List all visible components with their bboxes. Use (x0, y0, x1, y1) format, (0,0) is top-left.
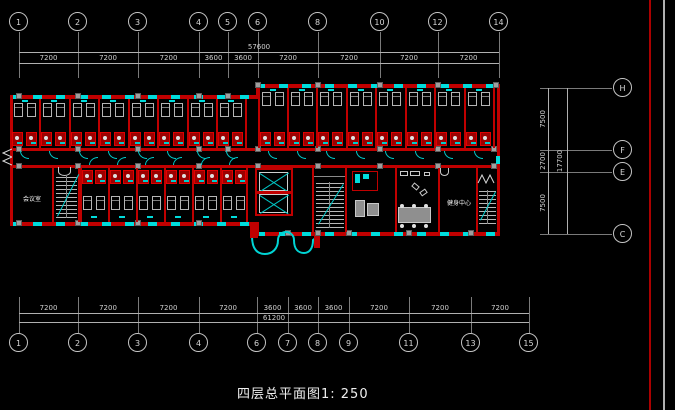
bathroom (159, 132, 170, 146)
room-label-center: 健身中心 (442, 198, 476, 207)
bath-fixture-cyan (355, 174, 360, 183)
bathroom (318, 132, 329, 146)
grid-bubble-bottom: 7 (278, 333, 297, 352)
bathroom (466, 132, 477, 146)
bed (468, 92, 477, 106)
window-tick (496, 156, 500, 164)
dim-segment-top: 3600 (228, 54, 258, 62)
bathroom-fixture (469, 136, 473, 140)
bed-pillow-line (133, 107, 140, 108)
bathroom-fixture (141, 174, 145, 178)
dim-total-bottom: 61200 (249, 314, 299, 322)
bathroom-fixture-cyan (105, 142, 110, 144)
bathroom-fixture-cyan (90, 142, 95, 144)
dim-line-top-total (19, 52, 499, 53)
bed (350, 92, 359, 106)
stair-wall (345, 168, 347, 232)
grid-bubble-bottom: 2 (68, 333, 87, 352)
bed (86, 103, 95, 117)
column-marker (468, 230, 474, 236)
grid-bubble-bottom: 3 (128, 333, 147, 352)
table-chair-dot (424, 224, 428, 228)
grid-bubble-right: F (613, 140, 632, 159)
bed-pillow-line (196, 200, 203, 201)
bathroom (303, 132, 314, 146)
bathroom (222, 170, 233, 184)
bathroom (207, 170, 218, 184)
bathroom (85, 132, 96, 146)
bed (392, 92, 401, 106)
cad-floorplan-canvas: 1234568101214576007200720072003600360072… (0, 0, 675, 410)
dim-segment-bottom: 7200 (364, 304, 394, 312)
bathroom-fixture (154, 174, 158, 178)
bed-pillow-line (103, 107, 110, 108)
bathroom-fixture (133, 136, 137, 140)
bathroom-fixture-cyan (455, 142, 460, 144)
bathroom-fixture (380, 136, 384, 140)
door-swing-arc (415, 151, 424, 159)
column-marker (315, 163, 321, 169)
bathroom-fixture-cyan (208, 142, 213, 144)
tv-desk-mark (119, 216, 125, 218)
expansion-joint-zigzag (2, 148, 12, 168)
bathroom (391, 132, 402, 146)
bathroom (166, 170, 177, 184)
bathroom-fixture (277, 136, 281, 140)
bed (379, 92, 388, 106)
dim-line-right-total (567, 88, 568, 234)
dim-segment-top: 7200 (154, 54, 184, 62)
bathroom (100, 132, 111, 146)
bathroom-fixture (44, 136, 48, 140)
grid-line-top (78, 32, 79, 78)
bed (233, 103, 242, 117)
bed-pillow-line (334, 96, 341, 97)
grid-line-right (540, 172, 612, 173)
bed (409, 92, 418, 106)
tv-desk-mark (358, 89, 364, 91)
bed-pillow-line (305, 96, 312, 97)
column-marker (75, 93, 81, 99)
bathroom (12, 132, 23, 146)
door-swing-arc (49, 151, 58, 159)
bathroom-fixture-cyan (237, 142, 242, 144)
bathroom-fixture-cyan (128, 180, 133, 182)
bathroom-fixture (321, 136, 325, 140)
grid-line-right (540, 150, 612, 151)
dim-segment-right: 7500 (539, 99, 547, 139)
bed (220, 103, 229, 117)
tv-desk-mark (328, 89, 334, 91)
bathroom-fixture (169, 174, 173, 178)
grid-bubble-bottom: 8 (308, 333, 327, 352)
bathroom-fixture-cyan (149, 142, 154, 144)
door-swing-arc (167, 151, 176, 159)
bathroom-fixture (394, 136, 398, 140)
bed (204, 103, 213, 117)
grid-line-bottom (318, 297, 319, 333)
tv-desk-mark (169, 100, 175, 102)
bed-pillow-line (153, 200, 160, 201)
door-swing-arc (385, 151, 394, 159)
bathroom-fixture-cyan (426, 142, 431, 144)
bathroom-fixture (147, 136, 151, 140)
bathroom-fixture (103, 136, 107, 140)
grid-bubble-top: 14 (489, 12, 508, 31)
bathroom-fixture-cyan (199, 180, 204, 182)
bed (422, 92, 431, 106)
bathroom-fixture (29, 136, 33, 140)
bathroom-fixture (206, 136, 210, 140)
bed-pillow-line (57, 107, 64, 108)
room-partition-wall (438, 168, 440, 232)
grid-bubble-bottom: 9 (339, 333, 358, 352)
grid-bubble-top: 5 (218, 12, 237, 31)
bathroom-fixture-cyan (135, 142, 140, 144)
grid-bubble-bottom: 13 (461, 333, 480, 352)
bathroom-fixture (176, 136, 180, 140)
dim-segment-bottom: 7200 (154, 304, 184, 312)
table-chair-dot (412, 224, 416, 228)
bed-pillow-line (351, 96, 358, 97)
bed (174, 103, 183, 117)
equipment-block (367, 203, 379, 216)
stair-landing-line (314, 176, 345, 177)
column-marker (135, 93, 141, 99)
bathroom-fixture-cyan (60, 142, 65, 144)
bed-pillow-line (74, 107, 81, 108)
grid-bubble-top: 1 (9, 12, 28, 31)
room-partition-wall (493, 88, 495, 148)
table-chair-dot (400, 224, 404, 228)
desk (424, 172, 430, 176)
dim-segment-bottom: 3600 (288, 304, 318, 312)
meeting-room-wall (52, 168, 54, 222)
equipment-block (355, 200, 365, 217)
bed-pillow-line (44, 107, 51, 108)
bed-pillow-line (482, 96, 489, 97)
grid-line-bottom (78, 297, 79, 333)
door-arc (440, 168, 449, 176)
bathroom-fixture-cyan (367, 142, 372, 144)
bathroom-fixture (15, 136, 19, 140)
bed-pillow-line (125, 200, 132, 201)
bathroom (348, 132, 359, 146)
column-marker (16, 163, 22, 169)
bed (145, 103, 154, 117)
chair (419, 188, 428, 196)
tv-desk-mark (175, 216, 181, 218)
door-swing-arc (89, 157, 98, 165)
grid-line-bottom (349, 297, 350, 333)
dim-segment-bottom: 7200 (213, 304, 243, 312)
door-swing-arc (326, 151, 335, 159)
tv-desk-mark (231, 216, 237, 218)
room-partition-wall (245, 99, 247, 148)
bed (223, 196, 232, 210)
door-swing-arc (297, 151, 306, 159)
bathroom-fixture (221, 136, 225, 140)
door-swing-arc (356, 151, 365, 159)
bathroom (421, 132, 432, 146)
bathroom (407, 132, 418, 146)
bathroom-fixture (58, 136, 62, 140)
bathroom-fixture-cyan (279, 142, 284, 144)
bathroom-fixture (74, 136, 78, 140)
grid-line-bottom (199, 297, 200, 333)
grid-bubble-top: 6 (248, 12, 267, 31)
bathroom-fixture (410, 136, 414, 140)
elevator-divider-wall (257, 191, 291, 194)
bathroom (95, 170, 106, 184)
bath-fixture-cyan (363, 174, 369, 179)
tv-desk-mark (22, 100, 28, 102)
table-chair-dot (424, 204, 428, 208)
grid-line-top (318, 32, 319, 78)
column-marker (16, 220, 22, 226)
bed-pillow-line (292, 96, 299, 97)
dim-segment-right: 2700 (539, 141, 547, 181)
bed-pillow-line (181, 200, 188, 201)
exterior-wall-bottom-left (10, 222, 258, 226)
bathroom-fixture-cyan (31, 142, 36, 144)
bed-pillow-line (439, 96, 446, 97)
bathroom (110, 170, 121, 184)
grid-line-top (19, 32, 20, 78)
large-table (398, 207, 431, 223)
tv-desk-mark (446, 89, 452, 91)
bathroom (450, 132, 461, 146)
bed-pillow-line (205, 107, 212, 108)
drawing-frame-red-line (649, 0, 651, 410)
dim-segment-top: 7200 (334, 54, 364, 62)
bathroom (130, 132, 141, 146)
bathroom-fixture (306, 136, 310, 140)
column-marker (377, 82, 383, 88)
bed-pillow-line (15, 107, 22, 108)
grid-line-right (540, 234, 612, 235)
grid-bubble-bottom: 15 (519, 333, 538, 352)
bed (83, 196, 92, 210)
grid-bubble-top: 4 (189, 12, 208, 31)
grid-line-top (138, 32, 139, 78)
bathroom (194, 170, 205, 184)
bathroom (41, 132, 52, 146)
bathroom (123, 170, 134, 184)
bathroom-fixture (351, 136, 355, 140)
bathroom-fixture-cyan (412, 142, 417, 144)
bed (195, 196, 204, 210)
tv-desk-mark (299, 89, 305, 91)
grid-line-bottom (19, 297, 20, 333)
chair (411, 182, 420, 190)
door-swing-arc (444, 151, 453, 159)
bathroom-fixture-cyan (178, 142, 183, 144)
bathroom (179, 170, 190, 184)
bathroom-fixture-cyan (353, 142, 358, 144)
door-swing-arc (20, 151, 29, 159)
drawing-frame-gray-line (663, 0, 665, 410)
bed (320, 92, 329, 106)
bed-pillow-line (116, 107, 123, 108)
dim-segment-top: 7200 (273, 54, 303, 62)
bathroom-fixture (162, 136, 166, 140)
bed (208, 196, 217, 210)
grid-bubble-top: 10 (370, 12, 389, 31)
bed (124, 196, 133, 210)
bed (451, 92, 460, 106)
bed-pillow-line (112, 200, 119, 201)
dim-segment-bottom: 3600 (319, 304, 349, 312)
bed (180, 196, 189, 210)
grid-bubble-top: 3 (128, 12, 147, 31)
bathroom-fixture (439, 136, 443, 140)
bathroom-fixture (424, 136, 428, 140)
bathroom (480, 132, 491, 146)
bed-pillow-line (321, 96, 328, 97)
bed (191, 103, 200, 117)
bed (14, 103, 23, 117)
bathroom (232, 132, 243, 146)
bed-pillow-line (168, 200, 175, 201)
grid-bubble-top: 12 (428, 12, 447, 31)
bathroom-fixture-cyan (184, 180, 189, 182)
bathroom (436, 132, 447, 146)
bathroom-fixture (238, 174, 242, 178)
bathroom-fixture (117, 136, 121, 140)
bathroom (26, 132, 37, 146)
bathroom-fixture (335, 136, 339, 140)
table-chair-dot (412, 204, 416, 208)
bed-pillow-line (97, 200, 104, 201)
tv-desk-mark (81, 100, 87, 102)
tv-desk-mark (387, 89, 393, 91)
bed (115, 103, 124, 117)
grid-line-top (438, 32, 439, 78)
grid-line-bottom (529, 297, 530, 333)
grid-bubble-right: H (613, 78, 632, 97)
bed-pillow-line (380, 96, 387, 97)
bed (43, 103, 52, 117)
bathroom-fixture-cyan (441, 142, 446, 144)
bathroom-fixture-cyan (323, 142, 328, 144)
bed (291, 92, 300, 106)
dim-segment-bottom: 7200 (34, 304, 64, 312)
bathroom (138, 170, 149, 184)
door-swing-arc (79, 151, 88, 159)
bed-pillow-line (87, 107, 94, 108)
bed-pillow-line (84, 200, 91, 201)
bed-pillow-line (469, 96, 476, 97)
bed (304, 92, 313, 106)
bathroom (55, 132, 66, 146)
bathroom-fixture (292, 136, 296, 140)
bed (275, 92, 284, 106)
bed (132, 103, 141, 117)
door-swing-arc (268, 151, 277, 159)
bed (333, 92, 342, 106)
grid-bubble-right: C (613, 224, 632, 243)
grid-bubble-bottom: 11 (399, 333, 418, 352)
bed-pillow-line (175, 107, 182, 108)
tv-desk-mark (140, 100, 146, 102)
bed-pillow-line (393, 96, 400, 97)
column-marker (196, 93, 202, 99)
bed-pillow-line (237, 200, 244, 201)
bathroom-fixture-cyan (240, 180, 245, 182)
bed-pillow-line (162, 107, 169, 108)
bed (27, 103, 36, 117)
bed (73, 103, 82, 117)
bathroom-fixture (197, 174, 201, 178)
bed-pillow-line (410, 96, 417, 97)
grid-bubble-right: E (613, 162, 632, 181)
door-swing-arc (138, 151, 147, 159)
bathroom-fixture-cyan (194, 142, 199, 144)
tv-desk-mark (147, 216, 153, 218)
door-swing-arc (117, 157, 126, 165)
stair-door-arc (58, 167, 71, 176)
column-marker (225, 93, 231, 99)
bathroom-fixture-cyan (227, 180, 232, 182)
dim-line-bottom-total (19, 322, 529, 323)
bed (139, 196, 148, 210)
dim-segment-bottom: 7200 (485, 304, 515, 312)
bathroom-fixture (453, 136, 457, 140)
bathroom (82, 170, 93, 184)
door-swing-arc (474, 151, 483, 159)
column-marker (406, 230, 412, 236)
bed (56, 103, 65, 117)
bed-pillow-line (423, 96, 430, 97)
bathroom-fixture-cyan (119, 142, 124, 144)
bed (161, 103, 170, 117)
dim-segment-top: 7200 (34, 54, 64, 62)
desk (400, 171, 408, 176)
bed-pillow-line (221, 107, 228, 108)
bathroom-fixture (263, 136, 267, 140)
column-marker (196, 220, 202, 226)
stair-zigzag (477, 169, 495, 179)
bathroom-fixture-cyan (265, 142, 270, 144)
bed (262, 92, 271, 106)
bed (236, 196, 245, 210)
bathroom-fixture (235, 136, 239, 140)
bed (111, 196, 120, 210)
bathroom-fixture-cyan (17, 142, 22, 144)
room-partition-wall (395, 168, 397, 232)
dim-line-right-segments (548, 88, 549, 234)
bed-pillow-line (28, 107, 35, 108)
grid-bubble-top: 8 (308, 12, 327, 31)
bathroom-fixture (85, 174, 89, 178)
bathroom-fixture-cyan (171, 180, 176, 182)
bathroom (173, 132, 184, 146)
grid-bubble-bottom: 4 (189, 333, 208, 352)
room-label-meeting-room: 会议室 (17, 194, 47, 203)
dim-segment-bottom: 3600 (258, 304, 288, 312)
tv-desk-mark (110, 100, 116, 102)
bed (167, 196, 176, 210)
bed (438, 92, 447, 106)
bathroom-fixture (210, 174, 214, 178)
bed-pillow-line (452, 96, 459, 97)
bathroom-fixture (113, 174, 117, 178)
bathroom-fixture-cyan (100, 180, 105, 182)
bathroom-fixture (182, 174, 186, 178)
bathroom (362, 132, 373, 146)
bathroom (289, 132, 300, 146)
